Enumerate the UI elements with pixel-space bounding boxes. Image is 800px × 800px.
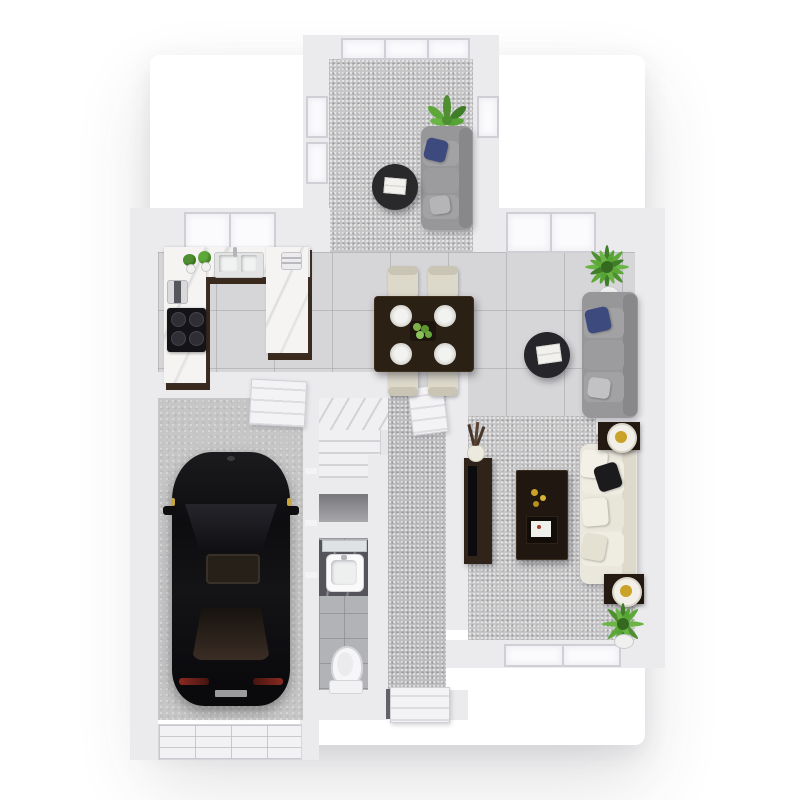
wall-garage-bottom-left bbox=[130, 720, 158, 760]
books-on-table bbox=[383, 177, 406, 195]
table-lamp-core bbox=[615, 431, 627, 443]
kitchen-sink-basin bbox=[219, 255, 238, 272]
car-rear-window bbox=[192, 608, 270, 660]
family-sofa-back bbox=[622, 446, 636, 582]
car-taillight bbox=[253, 678, 283, 685]
place-setting bbox=[390, 305, 412, 327]
basin-faucet bbox=[341, 555, 347, 560]
toaster bbox=[281, 252, 302, 270]
car-front-badge bbox=[227, 456, 235, 461]
family-room-window bbox=[504, 644, 564, 667]
sunroom-window bbox=[384, 38, 429, 60]
chair-back bbox=[388, 266, 418, 275]
sunroom-window bbox=[427, 38, 470, 60]
garage-sectional-door bbox=[158, 724, 302, 760]
family-coffee-table bbox=[516, 470, 568, 560]
fruit bbox=[416, 331, 424, 339]
seat-cushion bbox=[423, 168, 459, 193]
place-setting bbox=[434, 305, 456, 327]
cooktop-burner bbox=[171, 331, 186, 346]
garage-service-door-open bbox=[249, 379, 307, 428]
garage-shelf bbox=[305, 468, 317, 474]
kitchen-sink-basin bbox=[241, 255, 257, 272]
car-side-mirror bbox=[285, 506, 299, 515]
wall-left-outer bbox=[130, 208, 158, 760]
sunroom-window bbox=[341, 38, 386, 60]
car-taillight bbox=[179, 678, 209, 685]
vase bbox=[467, 444, 485, 462]
sunroom-sofa-back bbox=[459, 128, 472, 228]
wall-garage-bath bbox=[303, 372, 319, 720]
gold-decor bbox=[531, 489, 538, 496]
vanity-mirror bbox=[322, 540, 367, 552]
wall-garage-bottom-right bbox=[300, 720, 319, 760]
car-side-marker bbox=[287, 498, 291, 506]
car-sunroof bbox=[206, 554, 260, 584]
fruit bbox=[425, 331, 432, 338]
books-on-table bbox=[536, 343, 562, 364]
front-door bbox=[390, 687, 450, 723]
floorplan-canvas: 3D rendered floor plan — ground floor, t… bbox=[0, 0, 800, 800]
place-setting bbox=[434, 343, 456, 365]
living-window bbox=[506, 212, 552, 253]
grey-pillow bbox=[429, 195, 451, 216]
table-lamp-core bbox=[620, 585, 632, 597]
card-accent bbox=[537, 525, 541, 529]
chair-back bbox=[428, 266, 458, 275]
living-sofa-back bbox=[623, 294, 637, 416]
dining-chair bbox=[428, 266, 458, 298]
seat-cushion bbox=[584, 340, 624, 370]
wall-understairs-lower bbox=[319, 522, 368, 538]
garage-shelf bbox=[305, 520, 317, 526]
chair-back bbox=[428, 387, 458, 396]
white-pillow bbox=[581, 497, 609, 527]
tray-card bbox=[531, 521, 551, 537]
cooktop-burner bbox=[189, 312, 204, 327]
wall-bath-hall bbox=[368, 455, 388, 700]
car-windshield bbox=[185, 504, 277, 550]
car-license-plate-face bbox=[215, 690, 247, 697]
sunroom-side-window bbox=[306, 96, 328, 138]
car-side-marker bbox=[171, 498, 175, 506]
coffee-machine bbox=[167, 280, 188, 304]
cooktop-burner bbox=[171, 312, 186, 327]
gold-decor bbox=[533, 501, 539, 507]
toilet-tank bbox=[329, 680, 363, 694]
wall-stairs-top bbox=[318, 372, 390, 398]
toilet-seat bbox=[337, 652, 353, 676]
navy-pillow bbox=[584, 306, 612, 334]
kitchen-faucet bbox=[233, 247, 237, 257]
gold-decor bbox=[540, 495, 546, 501]
kitchen-herb-pot bbox=[186, 264, 196, 274]
wall-bath-bottom bbox=[303, 690, 388, 720]
grey-pillow bbox=[587, 377, 612, 400]
garage-shelf bbox=[305, 572, 317, 578]
floor-closet bbox=[319, 494, 368, 522]
cooktop-burner bbox=[189, 331, 204, 346]
sunroom-side-window bbox=[306, 142, 328, 184]
bathroom-basin-bowl bbox=[331, 560, 357, 585]
dining-chair bbox=[388, 266, 418, 298]
kitchen-herb-pot bbox=[201, 262, 211, 272]
fruit bbox=[413, 323, 421, 331]
chair-back bbox=[388, 387, 418, 396]
stairs-winder-treads bbox=[319, 396, 388, 430]
family-palm-pot bbox=[614, 634, 634, 649]
place-setting bbox=[390, 343, 412, 365]
cream-pillow bbox=[580, 532, 608, 562]
sunroom-side-window bbox=[477, 96, 499, 138]
car-side-mirror bbox=[163, 506, 177, 515]
wall-understairs-upper bbox=[319, 478, 368, 494]
tv-flat-panel bbox=[468, 466, 477, 556]
